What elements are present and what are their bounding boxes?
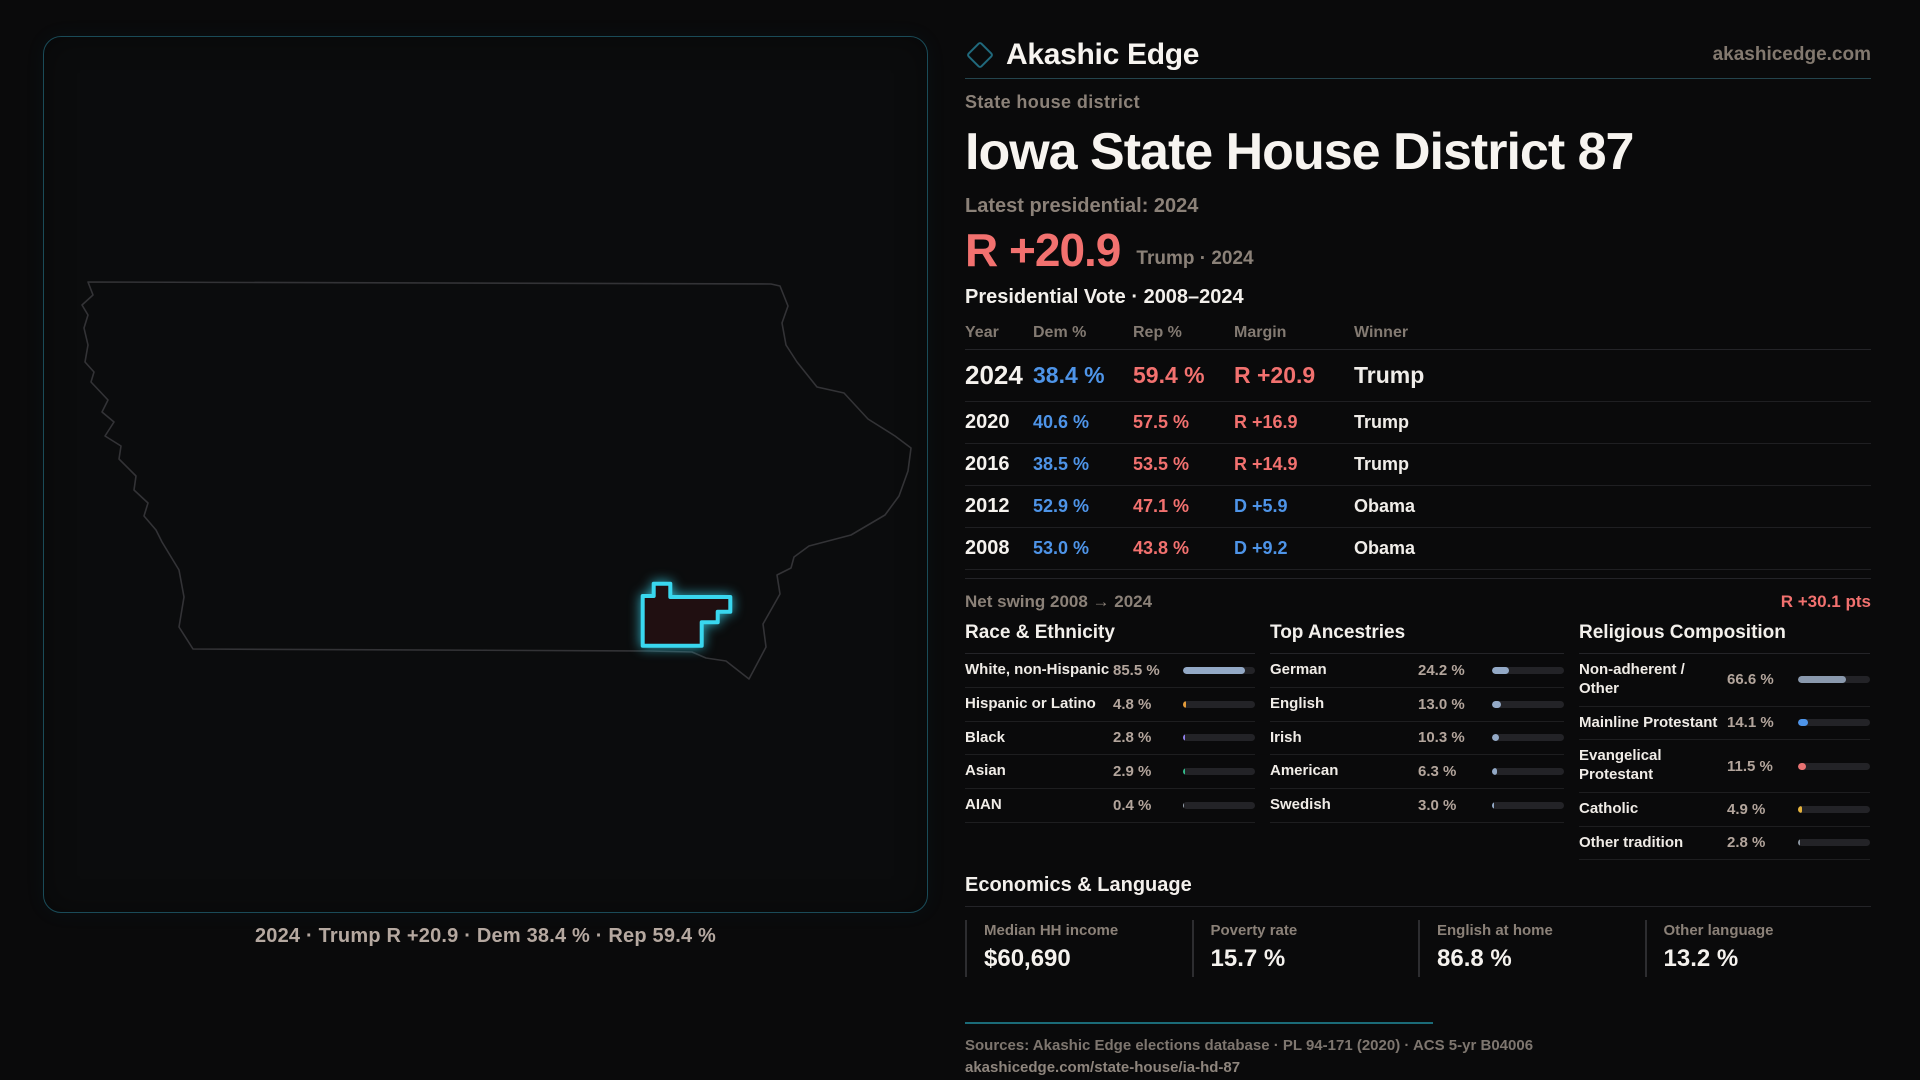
demo-bar-fill — [1798, 719, 1808, 726]
iowa-map — [71, 261, 951, 681]
brand-name: Akashic Edge — [1006, 38, 1199, 72]
vote-winner: Trump — [1354, 362, 1871, 389]
demo-bar-track — [1183, 701, 1255, 708]
col-margin: Margin — [1234, 324, 1354, 342]
vote-winner: Trump — [1354, 454, 1871, 475]
vote-row: 201638.5 %53.5 %R +14.9Trump — [965, 444, 1871, 486]
top-ancestries-column: Top Ancestries German24.2 %English13.0 %… — [1270, 622, 1564, 823]
demo-bar-track — [1798, 719, 1870, 726]
stat-item: English at home86.8 % — [1418, 920, 1645, 977]
stat-label: Poverty rate — [1211, 922, 1419, 939]
col-dem: Dem % — [1033, 324, 1133, 342]
religious-composition-column: Religious Composition Non-adherent / Oth… — [1579, 622, 1870, 860]
sources-text: Sources: Akashic Edge elections database… — [965, 1037, 1871, 1054]
demo-label: Mainline Protestant — [1579, 714, 1727, 733]
demographics-section: Race & Ethnicity White, non-Hispanic85.5… — [965, 622, 1871, 860]
demo-row: Hispanic or Latino4.8 % — [965, 688, 1255, 722]
vote-dem: 40.6 % — [1033, 412, 1133, 433]
stat-item: Poverty rate15.7 % — [1192, 920, 1419, 977]
demo-bar-track — [1183, 802, 1255, 809]
demo-bar-fill — [1183, 734, 1185, 741]
demo-value: 2.8 % — [1113, 729, 1183, 746]
vote-table-title: Presidential Vote · 2008–2024 — [965, 286, 1871, 309]
vote-year: 2012 — [965, 495, 1033, 518]
demo-label: Asian — [965, 762, 1113, 781]
demo-label: Swedish — [1270, 796, 1418, 815]
demo-label: Catholic — [1579, 800, 1727, 819]
vote-margin: R +16.9 — [1234, 412, 1354, 433]
latest-presidential-label: Latest presidential: 2024 — [965, 195, 1871, 218]
vote-rep: 47.1 % — [1133, 496, 1234, 517]
page-url[interactable]: akashicedge.com/state-house/ia-hd-87 — [965, 1059, 1871, 1076]
col-rep: Rep % — [1133, 324, 1234, 342]
demo-bar-track — [1798, 806, 1870, 813]
demo-value: 3.0 % — [1418, 797, 1492, 814]
demo-row: Non-adherent / Other66.6 % — [1579, 654, 1870, 707]
demo-row: Catholic4.9 % — [1579, 793, 1870, 827]
stat-item: Other language13.2 % — [1645, 920, 1872, 977]
vote-winner: Trump — [1354, 412, 1871, 433]
demo-value: 4.8 % — [1113, 696, 1183, 713]
demo-bar-fill — [1492, 768, 1497, 775]
stat-item: Median HH income$60,690 — [965, 920, 1192, 977]
net-swing-label: Net swing 2008 → 2024 — [965, 592, 1152, 612]
demo-row: Evangelical Protestant11.5 % — [1579, 740, 1870, 793]
vote-year: 2020 — [965, 411, 1033, 434]
header-divider — [965, 78, 1871, 79]
demo-bar-fill — [1798, 839, 1800, 846]
demo-label: AIAN — [965, 796, 1113, 815]
vote-row: 201252.9 %47.1 %D +5.9Obama — [965, 486, 1871, 528]
net-swing-row: Net swing 2008 → 2024 R +30.1 pts — [965, 578, 1871, 612]
headline-margin-context: Trump · 2024 — [1136, 248, 1253, 273]
top-ancestries-title: Top Ancestries — [1270, 622, 1564, 654]
economics-title: Economics & Language — [965, 874, 1871, 897]
demo-bar-track — [1492, 734, 1564, 741]
race-ethnicity-title: Race & Ethnicity — [965, 622, 1255, 654]
vote-margin: R +20.9 — [1234, 362, 1354, 389]
demo-bar-fill — [1798, 676, 1846, 683]
demo-label: Black — [965, 729, 1113, 748]
stat-label: English at home — [1437, 922, 1645, 939]
demo-label: English — [1270, 695, 1418, 714]
iowa-state-outline — [82, 282, 911, 679]
demo-label: Other tradition — [1579, 834, 1727, 853]
demo-value: 85.5 % — [1113, 662, 1183, 679]
stat-value: 15.7 % — [1211, 945, 1419, 973]
vote-rep: 57.5 % — [1133, 412, 1234, 433]
stat-value: 13.2 % — [1664, 945, 1872, 973]
demo-bar-track — [1183, 667, 1255, 674]
demo-row: German24.2 % — [1270, 654, 1564, 688]
vote-row: 202438.4 %59.4 %R +20.9Trump — [965, 350, 1871, 402]
demo-row: Other tradition2.8 % — [1579, 827, 1870, 861]
demo-label: White, non-Hispanic — [965, 661, 1113, 680]
vote-year: 2024 — [965, 360, 1033, 391]
demo-bar-fill — [1798, 763, 1806, 770]
stat-label: Other language — [1664, 922, 1872, 939]
demo-bar-fill — [1492, 701, 1501, 708]
demo-bar-fill — [1492, 734, 1499, 741]
net-swing-value: R +30.1 pts — [1781, 592, 1871, 612]
vote-dem: 53.0 % — [1033, 538, 1133, 559]
stat-value: $60,690 — [984, 945, 1192, 973]
highlighted-district-87[interactable] — [643, 584, 731, 646]
vote-dem: 38.4 % — [1033, 362, 1133, 389]
stat-value: 86.8 % — [1437, 945, 1645, 973]
demo-bar-track — [1492, 768, 1564, 775]
demo-value: 6.3 % — [1418, 763, 1492, 780]
vote-rep: 43.8 % — [1133, 538, 1234, 559]
demo-bar-track — [1183, 768, 1255, 775]
demo-bar-track — [1798, 839, 1870, 846]
brand-domain-link[interactable]: akashicedge.com — [1713, 44, 1871, 66]
vote-dem: 52.9 % — [1033, 496, 1133, 517]
vote-rep: 59.4 % — [1133, 362, 1234, 389]
demo-value: 2.9 % — [1113, 763, 1183, 780]
race-ethnicity-column: Race & Ethnicity White, non-Hispanic85.5… — [965, 622, 1255, 823]
footer-accent-divider — [965, 1022, 1433, 1024]
vote-winner: Obama — [1354, 538, 1871, 559]
demo-label: Hispanic or Latino — [965, 695, 1113, 714]
demo-row: AIAN0.4 % — [965, 789, 1255, 823]
demo-bar-fill — [1183, 701, 1186, 708]
demo-row: American6.3 % — [1270, 755, 1564, 789]
demo-value: 14.1 % — [1727, 714, 1798, 731]
demo-bar-fill — [1183, 667, 1245, 674]
vote-margin: D +5.9 — [1234, 496, 1354, 517]
demo-row: English13.0 % — [1270, 688, 1564, 722]
headline-margin-row: R +20.9 Trump · 2024 — [965, 227, 1871, 273]
demo-value: 11.5 % — [1727, 758, 1798, 775]
demo-value: 4.9 % — [1727, 801, 1798, 818]
vote-margin: D +9.2 — [1234, 538, 1354, 559]
kicker: State house district — [965, 92, 1871, 113]
district-map-panel — [43, 36, 928, 913]
demo-bar-fill — [1798, 806, 1802, 813]
demo-value: 13.0 % — [1418, 696, 1492, 713]
economics-divider — [965, 906, 1871, 907]
vote-margin: R +14.9 — [1234, 454, 1354, 475]
demo-bar-fill — [1492, 802, 1494, 809]
demo-row: White, non-Hispanic85.5 % — [965, 654, 1255, 688]
vote-winner: Obama — [1354, 496, 1871, 517]
demo-row: Asian2.9 % — [965, 755, 1255, 789]
col-winner: Winner — [1354, 324, 1871, 342]
page-title: Iowa State House District 87 — [965, 126, 1871, 178]
vote-row: 200853.0 %43.8 %D +9.2Obama — [965, 528, 1871, 570]
demo-bar-track — [1183, 734, 1255, 741]
vote-year: 2016 — [965, 453, 1033, 476]
demo-label: Evangelical Protestant — [1579, 747, 1727, 785]
demo-value: 2.8 % — [1727, 834, 1798, 851]
brand-header: Akashic Edge akashicedge.com — [965, 0, 1871, 70]
demo-bar-fill — [1183, 768, 1185, 775]
vote-row: 202040.6 %57.5 %R +16.9Trump — [965, 402, 1871, 444]
demo-label: American — [1270, 762, 1418, 781]
diamond-logo-icon — [966, 41, 994, 69]
demo-row: Mainline Protestant14.1 % — [1579, 707, 1870, 741]
vote-rep: 53.5 % — [1133, 454, 1234, 475]
vote-table-header: Year Dem % Rep % Margin Winner — [965, 324, 1871, 350]
demo-value: 0.4 % — [1113, 797, 1183, 814]
demo-label: Non-adherent / Other — [1579, 661, 1727, 699]
report-column: Akashic Edge akashicedge.com State house… — [965, 0, 1871, 1076]
demo-value: 24.2 % — [1418, 662, 1492, 679]
demo-label: German — [1270, 661, 1418, 680]
col-year: Year — [965, 324, 1033, 342]
demo-value: 10.3 % — [1418, 729, 1492, 746]
demo-row: Irish10.3 % — [1270, 722, 1564, 756]
demo-value: 66.6 % — [1727, 671, 1798, 688]
religious-composition-title: Religious Composition — [1579, 622, 1870, 654]
vote-year: 2008 — [965, 537, 1033, 560]
demo-bar-fill — [1492, 667, 1509, 674]
map-caption: 2024 · Trump R +20.9 · Dem 38.4 % · Rep … — [43, 925, 928, 948]
demo-row: Black2.8 % — [965, 722, 1255, 756]
stat-label: Median HH income — [984, 922, 1192, 939]
demo-bar-track — [1492, 667, 1564, 674]
demo-row: Swedish3.0 % — [1270, 789, 1564, 823]
economics-stats: Median HH income$60,690Poverty rate15.7 … — [965, 920, 1871, 977]
headline-margin-value: R +20.9 — [965, 227, 1120, 273]
vote-dem: 38.5 % — [1033, 454, 1133, 475]
demo-bar-track — [1492, 701, 1564, 708]
demo-bar-track — [1492, 802, 1564, 809]
demo-label: Irish — [1270, 729, 1418, 748]
demo-bar-track — [1798, 676, 1870, 683]
demo-bar-track — [1798, 763, 1870, 770]
presidential-vote-table: Year Dem % Rep % Margin Winner 202438.4 … — [965, 324, 1871, 570]
